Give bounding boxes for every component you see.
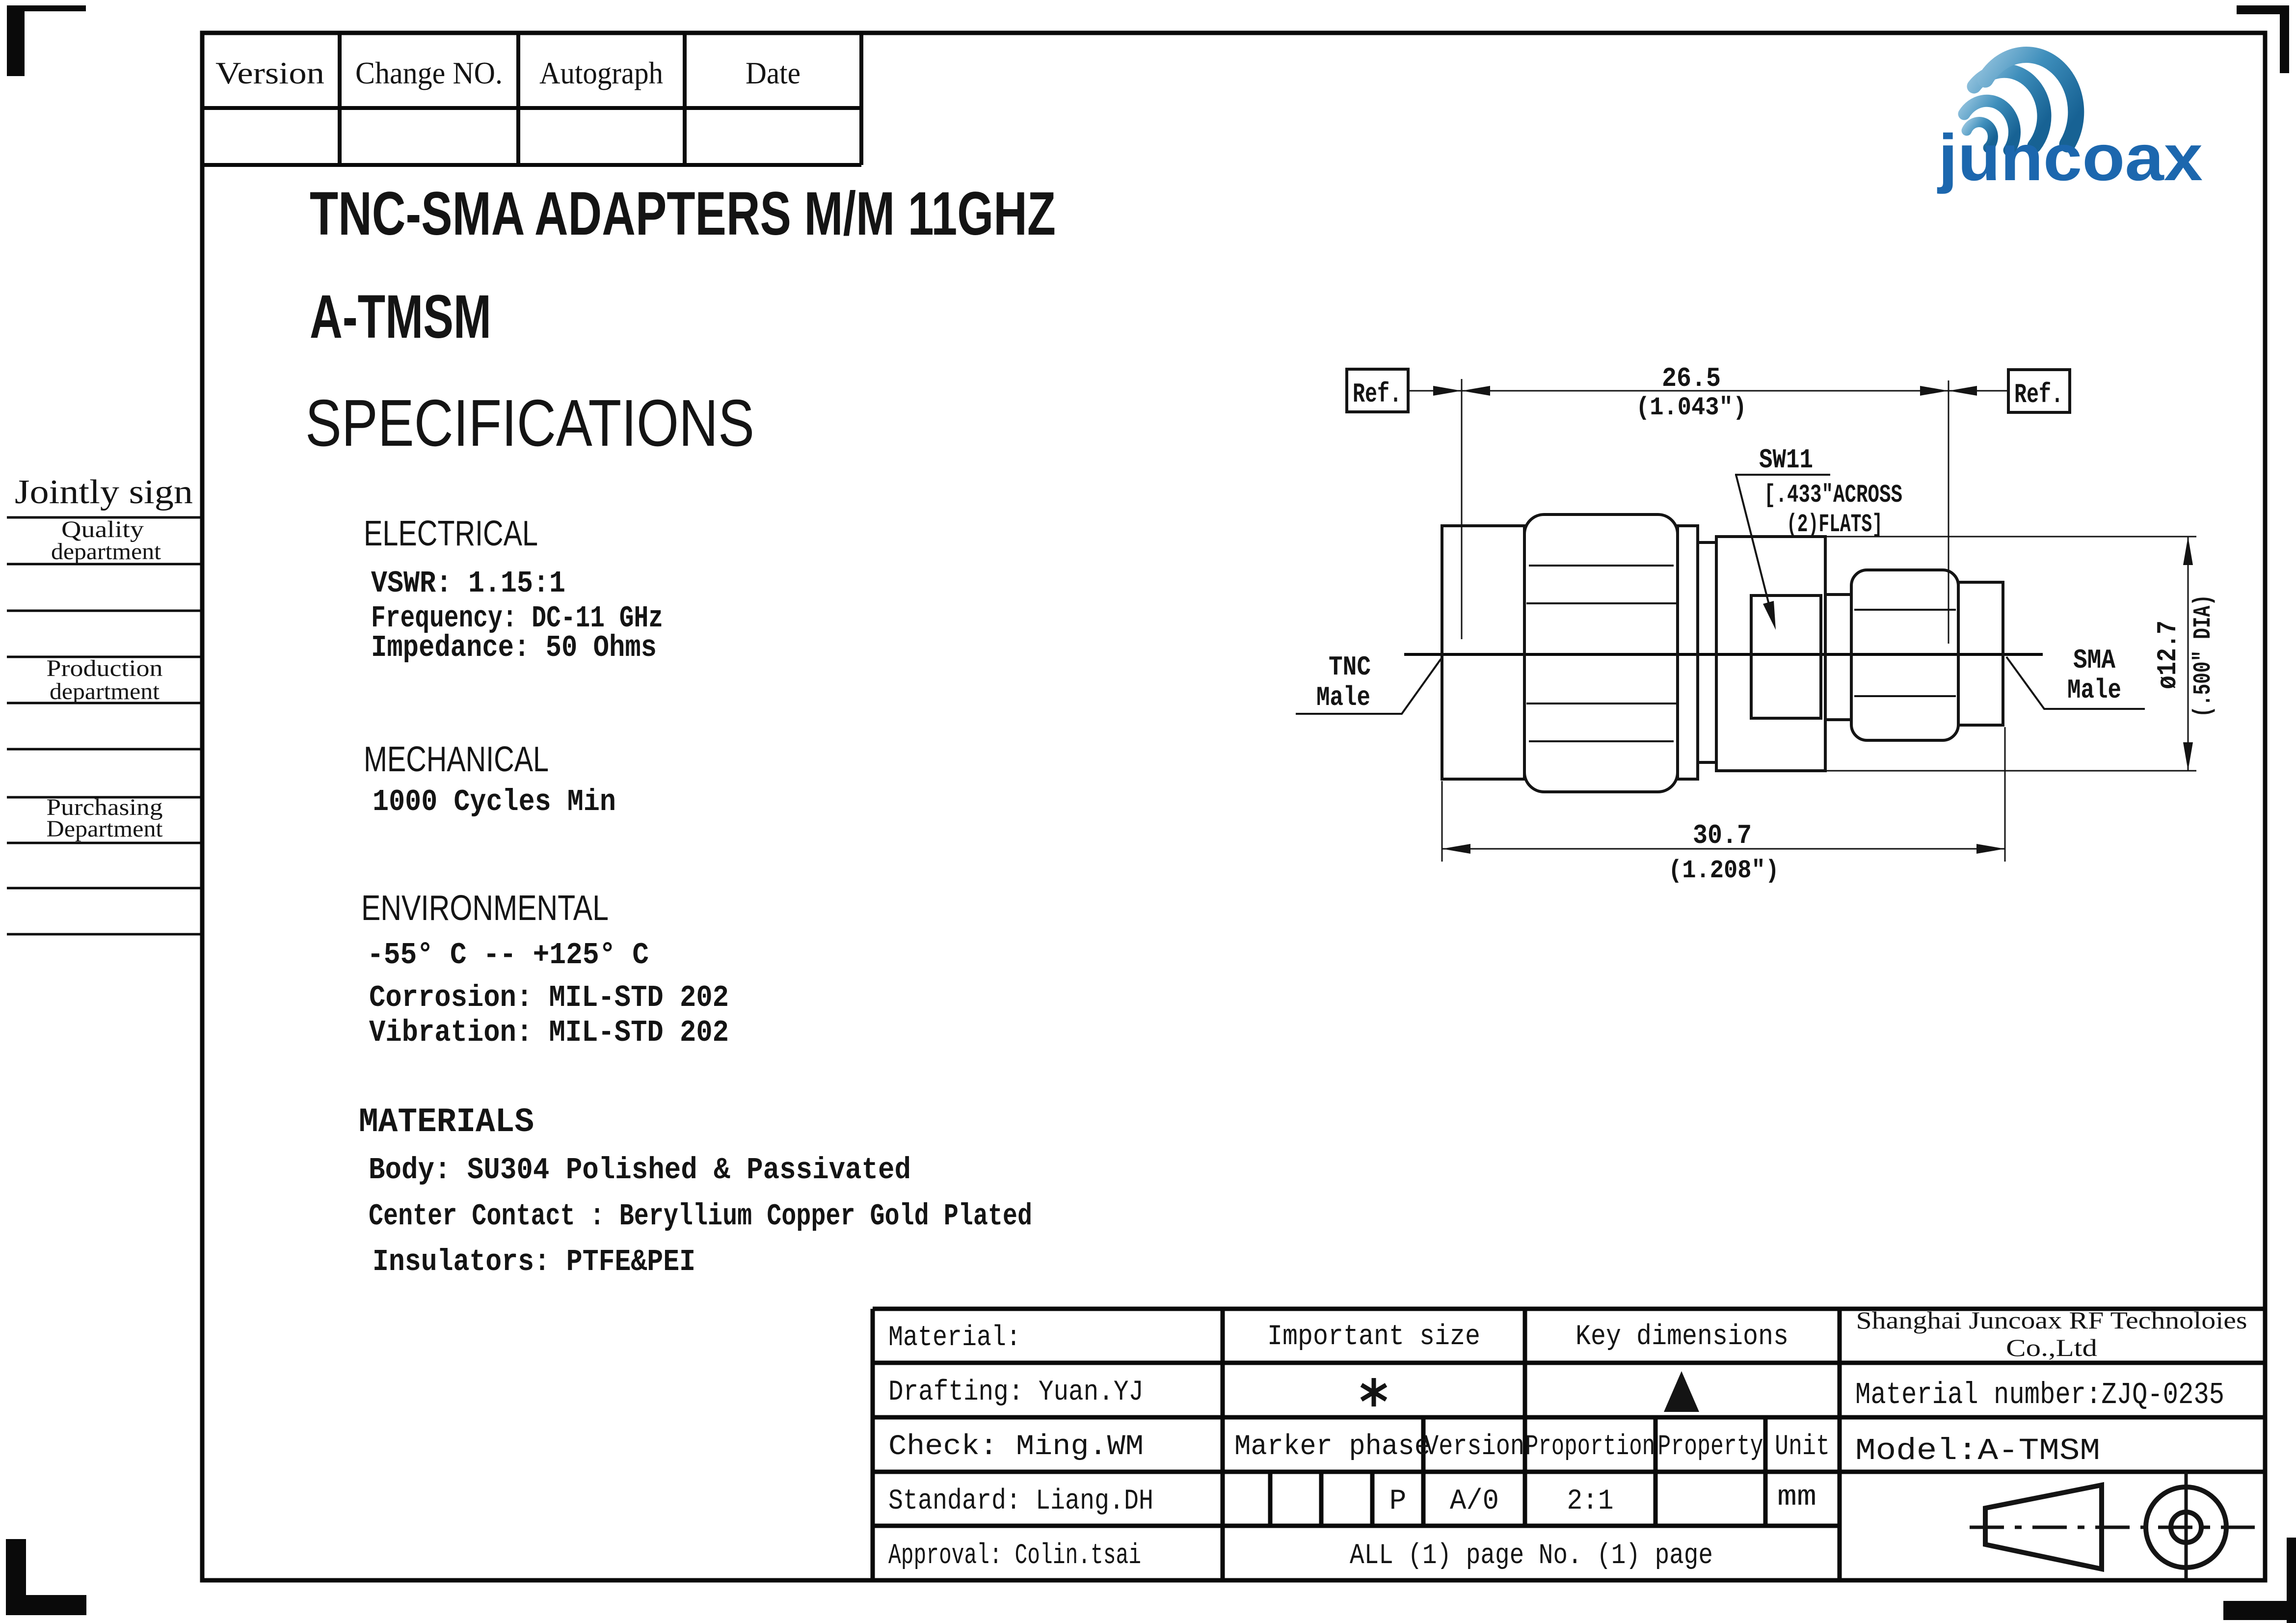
svg-text:(2)FLATS]: (2)FLATS] bbox=[1787, 510, 1883, 539]
svg-text:Material:: Material: bbox=[888, 1322, 1021, 1354]
svg-text:A/0: A/0 bbox=[1450, 1486, 1499, 1517]
svg-text:[.433″ACROSS: [.433″ACROSS bbox=[1764, 481, 1902, 510]
svg-text:Important size: Important size bbox=[1267, 1321, 1480, 1353]
svg-text:Jointly sign: Jointly sign bbox=[15, 473, 193, 511]
svg-text:1000 Cycles Min: 1000 Cycles Min bbox=[373, 784, 616, 819]
svg-text:P: P bbox=[1389, 1486, 1407, 1517]
svg-text:Date: Date bbox=[746, 55, 801, 90]
svg-text:Center Contact : Beryllium Cop: Center Contact : Beryllium Copper Gold P… bbox=[369, 1199, 1032, 1234]
svg-text:(1.043″): (1.043″) bbox=[1636, 393, 1747, 422]
svg-text:-55° C -- +125° C: -55° C -- +125° C bbox=[367, 938, 649, 973]
svg-text:Insulators: PTFE&PEI: Insulators: PTFE&PEI bbox=[373, 1244, 695, 1279]
svg-text:Proportion: Proportion bbox=[1525, 1431, 1655, 1463]
svg-text:SW11: SW11 bbox=[1759, 444, 1813, 476]
svg-text:(1.208″): (1.208″) bbox=[1668, 856, 1779, 885]
svg-text:juncoax: juncoax bbox=[1937, 121, 2203, 194]
svg-text:TNC-SMA ADAPTERS M/M 11GHZ: TNC-SMA ADAPTERS M/M 11GHZ bbox=[310, 180, 1056, 248]
svg-text:Version: Version bbox=[1424, 1431, 1524, 1463]
svg-text:Approval: Colin.tsai: Approval: Colin.tsai bbox=[888, 1540, 1141, 1572]
svg-text:VSWR: 1.15:1: VSWR: 1.15:1 bbox=[371, 566, 565, 601]
svg-text:Shanghai Juncoax RF Technoloie: Shanghai Juncoax RF Technoloies bbox=[1856, 1306, 2247, 1334]
svg-text:Material number:ZJQ-0235: Material number:ZJQ-0235 bbox=[1855, 1378, 2224, 1412]
svg-text:Corrosion: MIL-STD 202: Corrosion: MIL-STD 202 bbox=[369, 980, 729, 1015]
svg-text:Marker phase: Marker phase bbox=[1234, 1431, 1431, 1463]
svg-text:Production: Production bbox=[47, 655, 163, 681]
svg-text:Key dimensions: Key dimensions bbox=[1575, 1321, 1789, 1353]
svg-text:Property: Property bbox=[1658, 1431, 1763, 1463]
svg-text:ELECTRICAL: ELECTRICAL bbox=[364, 514, 538, 553]
svg-text:(.500″ DIA): (.500″ DIA) bbox=[2189, 595, 2217, 717]
svg-text:Co.,Ltd: Co.,Ltd bbox=[2006, 1334, 2097, 1361]
svg-text:Change NO.: Change NO. bbox=[355, 55, 503, 90]
svg-text:SMA: SMA bbox=[2073, 645, 2115, 676]
svg-text:Body: SU304 Polished & Passiva: Body: SU304 Polished & Passivated bbox=[369, 1153, 911, 1188]
svg-text:Ref.: Ref. bbox=[2014, 379, 2063, 410]
svg-text:ENVIRONMENTAL: ENVIRONMENTAL bbox=[361, 889, 609, 928]
svg-text:Unit: Unit bbox=[1775, 1431, 1830, 1463]
svg-text:department: department bbox=[50, 678, 160, 704]
svg-text:Department: Department bbox=[47, 816, 163, 842]
svg-text:30.7: 30.7 bbox=[1693, 820, 1752, 851]
svg-text:26.5: 26.5 bbox=[1662, 363, 1721, 394]
svg-text:Male: Male bbox=[2067, 675, 2121, 706]
svg-text:ø12.7: ø12.7 bbox=[2152, 621, 2184, 689]
svg-text:MATERIALS: MATERIALS bbox=[359, 1103, 534, 1142]
svg-text:Impedance: 50 Ohms: Impedance: 50 Ohms bbox=[371, 630, 657, 665]
svg-text:SPECIFICATIONS: SPECIFICATIONS bbox=[305, 386, 754, 460]
svg-text:MECHANICAL: MECHANICAL bbox=[364, 740, 549, 779]
svg-text:TNC: TNC bbox=[1329, 651, 1371, 683]
svg-text:A-TMSM: A-TMSM bbox=[310, 283, 491, 351]
svg-text:Vibration: MIL-STD 202: Vibration: MIL-STD 202 bbox=[369, 1015, 729, 1050]
svg-text:Male: Male bbox=[1316, 682, 1370, 713]
svg-text:Model:A-TMSM: Model:A-TMSM bbox=[1855, 1434, 2100, 1468]
svg-text:Version: Version bbox=[215, 55, 324, 90]
svg-text:Drafting: Yuan.YJ: Drafting: Yuan.YJ bbox=[888, 1377, 1144, 1408]
svg-text:Autograph: Autograph bbox=[539, 55, 663, 90]
svg-text:ALL (1) page No. (1) page: ALL (1) page No. (1) page bbox=[1350, 1540, 1713, 1572]
svg-text:Check: Ming.WM: Check: Ming.WM bbox=[888, 1431, 1144, 1463]
svg-text:Standard: Liang.DH: Standard: Liang.DH bbox=[888, 1486, 1153, 1517]
svg-text:department: department bbox=[51, 539, 161, 565]
svg-text:Ref.: Ref. bbox=[1353, 379, 1402, 410]
svg-text:2:1: 2:1 bbox=[1567, 1486, 1614, 1517]
svg-text:mm: mm bbox=[1777, 1482, 1816, 1514]
